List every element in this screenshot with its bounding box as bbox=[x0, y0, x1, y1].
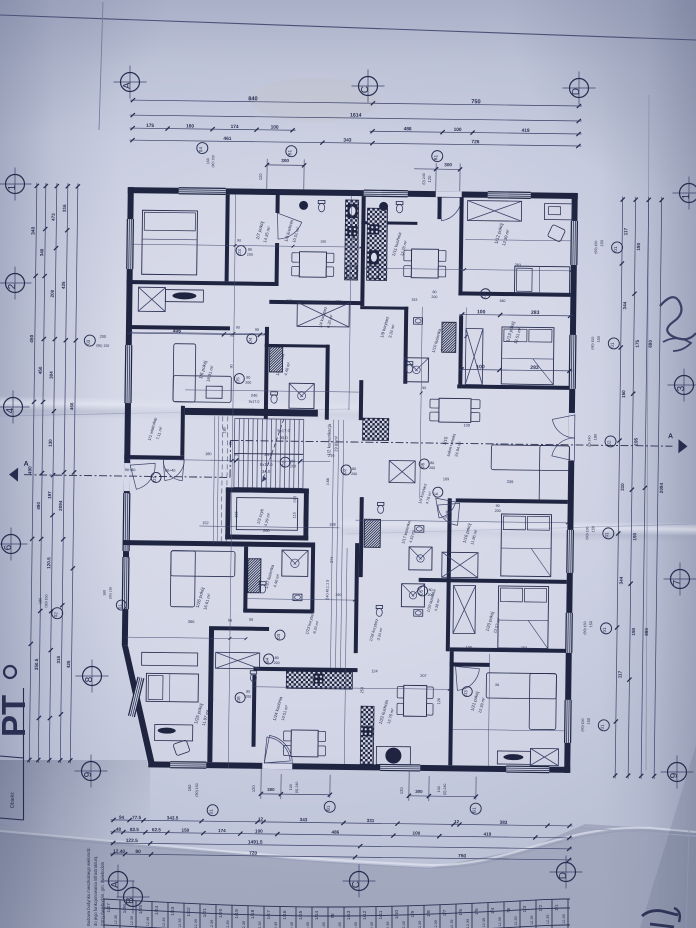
svg-text:12.39: 12.39 bbox=[514, 916, 518, 926]
svg-text:1/23: 1/23 bbox=[170, 906, 176, 916]
svg-text:01: 01 bbox=[600, 724, 605, 730]
svg-text:240: 240 bbox=[251, 393, 259, 398]
svg-text:200: 200 bbox=[427, 593, 433, 597]
svg-text:339: 339 bbox=[507, 479, 515, 484]
svg-text:7: 7 bbox=[672, 579, 683, 585]
svg-text:1/8: 1/8 bbox=[426, 910, 432, 917]
svg-text:A: A bbox=[668, 433, 673, 440]
svg-text:E: E bbox=[434, 492, 439, 495]
svg-text:1491.5: 1491.5 bbox=[248, 839, 263, 845]
svg-text:343: 343 bbox=[300, 817, 308, 822]
svg-text:426: 426 bbox=[66, 660, 71, 668]
svg-text:120: 120 bbox=[427, 175, 432, 183]
svg-text:B1: B1 bbox=[326, 805, 331, 811]
svg-text:150: 150 bbox=[597, 336, 601, 342]
svg-text:55: 55 bbox=[249, 618, 253, 622]
svg-text:240 M.1.1 5: 240 M.1.1 5 bbox=[325, 580, 329, 600]
svg-text:D4: D4 bbox=[248, 337, 253, 343]
svg-text:6: 6 bbox=[3, 544, 14, 550]
svg-text:24.0: 24.0 bbox=[264, 452, 273, 457]
svg-text:163: 163 bbox=[286, 299, 292, 303]
svg-text:100: 100 bbox=[477, 309, 486, 315]
svg-text:304: 304 bbox=[49, 371, 54, 379]
svg-text:100: 100 bbox=[255, 829, 263, 834]
svg-text:1/9: 1/9 bbox=[410, 911, 416, 918]
svg-text:200: 200 bbox=[247, 253, 253, 257]
svg-text:1/19: 1/19 bbox=[234, 909, 240, 919]
svg-text:190: 190 bbox=[631, 627, 636, 635]
svg-text:200: 200 bbox=[444, 515, 450, 519]
svg-text:117: 117 bbox=[623, 227, 628, 235]
svg-text:175: 175 bbox=[635, 339, 640, 347]
svg-text:190: 190 bbox=[636, 242, 641, 250]
svg-text:343.5: 343.5 bbox=[167, 815, 179, 820]
svg-text:(90) 150: (90) 150 bbox=[594, 241, 598, 254]
svg-text:1/25: 1/25 bbox=[138, 905, 144, 915]
svg-text:03: 03 bbox=[86, 339, 91, 345]
svg-text:100: 100 bbox=[271, 125, 279, 131]
svg-text:750: 750 bbox=[471, 99, 480, 105]
svg-text:490: 490 bbox=[36, 502, 41, 510]
svg-text:200: 200 bbox=[274, 661, 280, 665]
svg-text:1/12: 1/12 bbox=[362, 910, 368, 920]
svg-text:do jego funkcjonowania infrast: do jego funkcjonowania infrastrukturą bbox=[93, 856, 98, 926]
svg-text:01: 01 bbox=[117, 604, 122, 609]
svg-text:12.39: 12.39 bbox=[242, 921, 246, 928]
svg-text:466: 466 bbox=[69, 402, 74, 410]
svg-text:180: 180 bbox=[205, 452, 211, 456]
svg-text:180: 180 bbox=[499, 299, 505, 303]
svg-text:840: 840 bbox=[248, 96, 257, 102]
svg-text:1/26: 1/26 bbox=[122, 904, 128, 914]
svg-text:2094: 2094 bbox=[58, 500, 63, 511]
svg-text:2: 2 bbox=[7, 283, 18, 289]
svg-text:77.5: 77.5 bbox=[132, 815, 141, 820]
svg-text:12.39: 12.39 bbox=[306, 922, 310, 928]
svg-text:C: C bbox=[360, 86, 371, 93]
svg-text:150: 150 bbox=[182, 828, 190, 833]
svg-text:80: 80 bbox=[432, 290, 436, 294]
svg-text:486: 486 bbox=[404, 126, 412, 132]
svg-text:12: 12 bbox=[454, 819, 460, 824]
svg-text:1/2: 1/2 bbox=[538, 905, 544, 912]
svg-text:01: 01 bbox=[613, 246, 618, 252]
svg-text:(0) 240: (0) 240 bbox=[295, 782, 299, 793]
svg-text:120: 120 bbox=[251, 785, 256, 793]
svg-text:01: 01 bbox=[602, 627, 607, 633]
svg-text:461: 461 bbox=[223, 136, 231, 142]
svg-text:1: 1 bbox=[681, 193, 692, 199]
svg-text:80: 80 bbox=[246, 690, 250, 694]
svg-text:100: 100 bbox=[466, 646, 472, 650]
svg-text:PT: PT bbox=[0, 695, 32, 737]
svg-text:12.39: 12.39 bbox=[402, 921, 406, 928]
svg-text:1/2 komunikacja: 1/2 komunikacja bbox=[326, 423, 331, 455]
svg-text:100: 100 bbox=[413, 831, 421, 836]
svg-text:490: 490 bbox=[27, 466, 33, 474]
svg-text:1614: 1614 bbox=[350, 113, 362, 119]
svg-text:80: 80 bbox=[495, 683, 499, 687]
svg-text:12.39: 12.39 bbox=[114, 915, 118, 925]
svg-text:12.39: 12.39 bbox=[322, 922, 326, 928]
svg-text:253: 253 bbox=[360, 687, 364, 693]
svg-text:200: 200 bbox=[100, 335, 106, 339]
svg-text:B1: B1 bbox=[433, 154, 438, 160]
svg-text:100: 100 bbox=[437, 786, 441, 792]
svg-text:300: 300 bbox=[444, 162, 452, 167]
svg-text:90+40: 90+40 bbox=[165, 469, 176, 473]
svg-text:343: 343 bbox=[343, 137, 351, 143]
svg-text:174: 174 bbox=[231, 124, 239, 130]
svg-text:82.5: 82.5 bbox=[130, 827, 139, 832]
svg-text:200: 200 bbox=[431, 295, 437, 299]
svg-text:450: 450 bbox=[29, 334, 35, 342]
svg-text:(0) 240: (0) 240 bbox=[422, 173, 426, 184]
svg-text:316: 316 bbox=[56, 655, 61, 663]
svg-text:(90) 150: (90) 150 bbox=[96, 344, 109, 348]
svg-text:9x17.0: 9x17.0 bbox=[249, 400, 260, 404]
svg-text:1/27: 1/27 bbox=[106, 903, 112, 913]
svg-text:283: 283 bbox=[521, 646, 527, 650]
svg-text:(90) 150: (90) 150 bbox=[581, 718, 585, 731]
svg-text:100: 100 bbox=[476, 364, 485, 370]
svg-text:300: 300 bbox=[267, 787, 275, 792]
svg-text:(90) 150: (90) 150 bbox=[583, 621, 587, 634]
svg-text:150: 150 bbox=[187, 784, 192, 792]
svg-text:115: 115 bbox=[292, 512, 296, 518]
svg-text:90: 90 bbox=[496, 504, 500, 508]
svg-text:100: 100 bbox=[320, 240, 326, 244]
svg-text:100: 100 bbox=[454, 127, 462, 133]
svg-text:12.39: 12.39 bbox=[386, 922, 390, 928]
svg-text:1/20: 1/20 bbox=[218, 908, 224, 918]
svg-text:120: 120 bbox=[258, 173, 263, 181]
svg-text:(90) 150: (90) 150 bbox=[44, 594, 48, 607]
svg-text:1/18: 1/18 bbox=[250, 909, 256, 919]
svg-text:D5: D5 bbox=[418, 589, 423, 595]
svg-text:340: 340 bbox=[31, 226, 37, 234]
svg-text:80: 80 bbox=[246, 376, 250, 380]
svg-text:(001) Świebodzin, gm. Świebodz: (001) Świebodzin, gm. Świebodzin bbox=[100, 861, 105, 926]
svg-text:1/3: 1/3 bbox=[522, 905, 528, 912]
svg-text:419: 419 bbox=[484, 832, 492, 837]
svg-text:150: 150 bbox=[600, 240, 604, 246]
svg-text:117: 117 bbox=[617, 670, 622, 678]
svg-text:316: 316 bbox=[62, 204, 67, 212]
svg-text:120.5: 120.5 bbox=[46, 557, 51, 569]
svg-text:1/11: 1/11 bbox=[378, 910, 384, 919]
svg-text:12.39: 12.39 bbox=[226, 920, 230, 928]
svg-text:A: A bbox=[110, 881, 121, 888]
svg-text:12.39: 12.39 bbox=[210, 920, 214, 928]
svg-text:150: 150 bbox=[589, 621, 593, 627]
svg-text:180: 180 bbox=[38, 598, 42, 604]
svg-text:(90) 150: (90) 150 bbox=[585, 527, 589, 540]
svg-text:374: 374 bbox=[330, 557, 334, 563]
svg-text:690: 690 bbox=[644, 628, 649, 636]
svg-text:190: 190 bbox=[632, 532, 637, 540]
svg-text:1/13: 1/13 bbox=[346, 910, 352, 920]
svg-text:D2: D2 bbox=[281, 460, 286, 466]
svg-text:D2: D2 bbox=[342, 468, 347, 474]
svg-text:1: 1 bbox=[7, 184, 18, 190]
svg-text:1/22: 1/22 bbox=[186, 907, 192, 917]
svg-text:80: 80 bbox=[429, 588, 433, 592]
svg-text:90: 90 bbox=[236, 325, 240, 329]
svg-text:12.39: 12.39 bbox=[498, 917, 502, 927]
svg-text:200: 200 bbox=[495, 509, 501, 513]
svg-text:12.39: 12.39 bbox=[418, 921, 422, 928]
svg-text:180: 180 bbox=[335, 300, 341, 304]
svg-text:90: 90 bbox=[229, 364, 233, 368]
svg-text:1/21: 1/21 bbox=[202, 908, 208, 918]
svg-text:450: 450 bbox=[38, 366, 43, 374]
svg-text:B4: B4 bbox=[265, 657, 270, 663]
svg-text:90: 90 bbox=[234, 452, 238, 456]
svg-text:2094: 2094 bbox=[659, 482, 664, 493]
svg-text:165: 165 bbox=[234, 511, 238, 517]
svg-text:D: D bbox=[558, 872, 569, 879]
svg-text:1/15: 1/15 bbox=[298, 910, 304, 920]
svg-text:197: 197 bbox=[47, 491, 52, 499]
svg-text:B1: B1 bbox=[472, 807, 477, 813]
svg-text:D5: D5 bbox=[420, 462, 425, 468]
svg-text:152: 152 bbox=[202, 521, 208, 525]
svg-text:126: 126 bbox=[437, 698, 441, 704]
svg-text:690: 690 bbox=[648, 340, 653, 348]
svg-text:D: D bbox=[571, 88, 582, 95]
svg-text:340: 340 bbox=[39, 248, 44, 256]
svg-text:12.39: 12.39 bbox=[450, 919, 454, 928]
svg-text:486: 486 bbox=[332, 830, 340, 835]
svg-text:283: 283 bbox=[530, 365, 539, 371]
svg-text:120: 120 bbox=[399, 787, 404, 795]
svg-text:383: 383 bbox=[500, 820, 508, 825]
svg-text:331: 331 bbox=[367, 818, 375, 823]
svg-text:D5: D5 bbox=[235, 377, 240, 383]
svg-text:80: 80 bbox=[248, 248, 252, 252]
svg-text:720: 720 bbox=[249, 851, 257, 857]
svg-text:9: 9 bbox=[83, 771, 94, 777]
svg-text:310: 310 bbox=[620, 483, 625, 491]
svg-text:12.39: 12.39 bbox=[338, 922, 342, 928]
svg-text:100: 100 bbox=[352, 237, 358, 241]
svg-text:3: 3 bbox=[676, 385, 687, 391]
svg-text:419: 419 bbox=[522, 128, 530, 134]
svg-text:300: 300 bbox=[415, 789, 423, 794]
svg-text:283: 283 bbox=[531, 310, 540, 316]
svg-text:80: 80 bbox=[430, 461, 434, 465]
svg-text:1/1: 1/1 bbox=[554, 904, 560, 911]
svg-text:109: 109 bbox=[443, 477, 449, 481]
svg-text:200: 200 bbox=[290, 464, 296, 468]
svg-text:1/24: 1/24 bbox=[154, 905, 160, 915]
svg-text:12.39: 12.39 bbox=[130, 916, 134, 926]
svg-text:9x17.0: 9x17.0 bbox=[277, 428, 290, 433]
svg-text:62.5: 62.5 bbox=[152, 827, 161, 832]
svg-text:406: 406 bbox=[173, 328, 182, 334]
svg-text:200: 200 bbox=[351, 472, 357, 476]
svg-text:01: 01 bbox=[610, 342, 615, 348]
svg-text:(90) 150: (90) 150 bbox=[211, 155, 215, 168]
svg-text:163: 163 bbox=[411, 298, 417, 302]
svg-text:12.39: 12.39 bbox=[466, 919, 470, 928]
svg-text:02: 02 bbox=[606, 440, 611, 446]
svg-text:8x17.0: 8x17.0 bbox=[260, 462, 273, 467]
svg-text:124: 124 bbox=[371, 669, 377, 673]
svg-text:12: 12 bbox=[258, 817, 264, 822]
svg-text:12.39: 12.39 bbox=[146, 917, 150, 927]
svg-text:726: 726 bbox=[471, 139, 479, 145]
svg-text:260: 260 bbox=[336, 593, 342, 597]
svg-text:01: 01 bbox=[604, 532, 609, 538]
svg-text:260: 260 bbox=[263, 528, 271, 533]
svg-text:196: 196 bbox=[210, 695, 214, 701]
svg-text:473: 473 bbox=[51, 213, 56, 221]
svg-text:D3: D3 bbox=[463, 690, 468, 696]
svg-text:200: 200 bbox=[429, 466, 435, 470]
svg-text:12.40: 12.40 bbox=[113, 849, 125, 855]
svg-text:4: 4 bbox=[5, 407, 16, 413]
svg-text:180: 180 bbox=[102, 590, 106, 596]
svg-text:1/10: 1/10 bbox=[394, 910, 400, 920]
svg-text:207: 207 bbox=[420, 674, 426, 678]
svg-text:48: 48 bbox=[116, 827, 122, 832]
svg-text:12.39: 12.39 bbox=[562, 914, 566, 924]
svg-text:04: 04 bbox=[198, 147, 203, 153]
svg-text:A: A bbox=[122, 82, 133, 89]
svg-text:426: 426 bbox=[61, 281, 66, 289]
svg-text:12.39: 12.39 bbox=[354, 922, 358, 928]
svg-text:(90) 150: (90) 150 bbox=[108, 587, 112, 599]
svg-text:175: 175 bbox=[146, 123, 154, 129]
svg-text:(0) 240: (0) 240 bbox=[587, 436, 591, 447]
svg-text:90: 90 bbox=[422, 386, 426, 390]
svg-text:200: 200 bbox=[245, 381, 251, 385]
svg-text:150: 150 bbox=[591, 526, 595, 532]
svg-text:Budowa budynku mieszkalnego wi: Budowa budynku mieszkalnego wielorodz. bbox=[86, 847, 91, 926]
svg-text:D3: D3 bbox=[237, 249, 242, 255]
svg-text:80: 80 bbox=[135, 849, 141, 855]
svg-text:200: 200 bbox=[50, 289, 55, 297]
svg-text:1/5: 1/5 bbox=[474, 908, 480, 915]
svg-text:80: 80 bbox=[291, 459, 295, 463]
svg-text:1/16: 1/16 bbox=[282, 910, 288, 920]
svg-text:(90) 150: (90) 150 bbox=[591, 337, 595, 350]
svg-text:174: 174 bbox=[218, 828, 226, 833]
svg-text:122.5: 122.5 bbox=[126, 838, 138, 844]
svg-text:150: 150 bbox=[587, 718, 591, 724]
svg-text:195: 195 bbox=[633, 437, 638, 445]
svg-text:180: 180 bbox=[223, 427, 227, 433]
svg-text:12.39: 12.39 bbox=[370, 922, 374, 928]
svg-text:180: 180 bbox=[594, 434, 598, 440]
svg-text:750: 750 bbox=[458, 853, 466, 859]
svg-text:12.39: 12.39 bbox=[546, 915, 550, 925]
svg-text:Nr: Nr bbox=[330, 913, 336, 918]
svg-text:34.0: 34.0 bbox=[262, 469, 271, 474]
svg-text:12.39: 12.39 bbox=[258, 921, 262, 928]
svg-text:12.39: 12.39 bbox=[194, 919, 198, 928]
svg-text:94: 94 bbox=[119, 815, 125, 820]
svg-text:344: 344 bbox=[622, 301, 627, 309]
svg-text:90: 90 bbox=[237, 239, 241, 243]
svg-text:4.66: 4.66 bbox=[326, 478, 330, 485]
svg-text:12.39: 12.39 bbox=[290, 922, 294, 928]
svg-text:02: 02 bbox=[53, 612, 58, 618]
svg-text:9: 9 bbox=[669, 772, 680, 778]
svg-text:12.39: 12.39 bbox=[482, 918, 486, 928]
svg-text:150: 150 bbox=[621, 390, 626, 398]
svg-text:(42): (42) bbox=[293, 496, 297, 502]
svg-text:300: 300 bbox=[281, 158, 289, 163]
svg-text:130: 130 bbox=[48, 439, 53, 447]
svg-text:(0) 240: (0) 240 bbox=[443, 784, 447, 795]
svg-text:1/6: 1/6 bbox=[458, 909, 464, 916]
svg-text:160: 160 bbox=[206, 158, 210, 164]
svg-text:1/14: 1/14 bbox=[314, 911, 320, 921]
svg-text:Nr: Nr bbox=[506, 907, 512, 912]
svg-text:8: 8 bbox=[84, 676, 95, 682]
svg-text:12.39: 12.39 bbox=[178, 918, 182, 928]
svg-text:12.39: 12.39 bbox=[274, 922, 278, 928]
svg-text:D3: D3 bbox=[276, 633, 281, 639]
svg-text:12.39: 12.39 bbox=[162, 918, 166, 928]
svg-text:80: 80 bbox=[446, 510, 450, 514]
svg-text:55: 55 bbox=[255, 328, 259, 332]
svg-text:90+40: 90+40 bbox=[125, 468, 136, 472]
svg-text:80: 80 bbox=[352, 467, 356, 471]
svg-text:1/4: 1/4 bbox=[490, 907, 496, 914]
svg-text:1/7: 1/7 bbox=[442, 909, 448, 916]
svg-text:01: 01 bbox=[209, 809, 214, 815]
svg-text:29.83 m²: 29.83 m² bbox=[333, 435, 338, 452]
svg-text:12.39: 12.39 bbox=[434, 920, 438, 928]
svg-text:B1: B1 bbox=[287, 149, 292, 155]
svg-text:344: 344 bbox=[619, 576, 624, 584]
svg-text:D8: D8 bbox=[236, 696, 241, 702]
svg-text:283: 283 bbox=[515, 263, 521, 267]
svg-text:100: 100 bbox=[289, 784, 293, 790]
svg-text:350.5: 350.5 bbox=[34, 658, 39, 670]
svg-text:109: 109 bbox=[464, 423, 470, 427]
svg-text:366: 366 bbox=[188, 619, 196, 624]
svg-text:D3: D3 bbox=[481, 292, 486, 298]
svg-text:(90) 150: (90) 150 bbox=[195, 783, 199, 796]
svg-text:Obiekt:: Obiekt: bbox=[10, 792, 16, 808]
svg-text:30.0: 30.0 bbox=[279, 435, 288, 440]
svg-text:80: 80 bbox=[275, 656, 279, 660]
svg-text:12.39: 12.39 bbox=[530, 915, 534, 925]
svg-text:1/17: 1/17 bbox=[266, 910, 272, 920]
svg-text:200: 200 bbox=[245, 695, 251, 699]
svg-text:C: C bbox=[351, 881, 362, 888]
svg-text:160: 160 bbox=[186, 123, 194, 129]
